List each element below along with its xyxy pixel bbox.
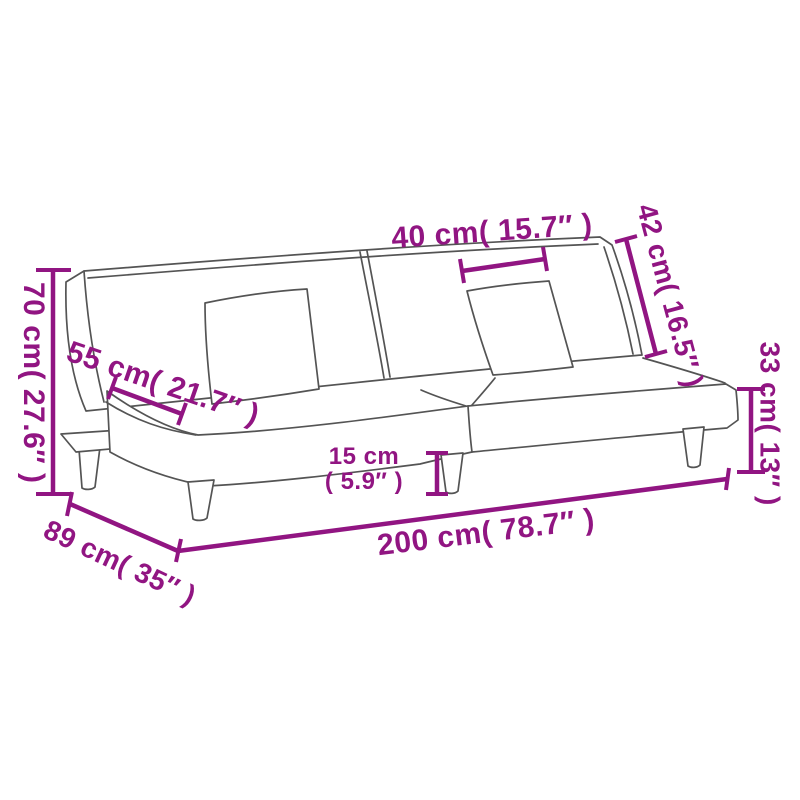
dimension-diagram: 70 cm( 27.6″ ) 55 cm( 21.7″ ) 40 cm( 15.…: [0, 0, 800, 800]
front-right-leg: [683, 427, 704, 467]
leg-height-inch: ( 5.9″ ): [289, 469, 439, 494]
leg-height-cm: 15 cm: [289, 444, 439, 469]
leg-height-label: 15 cm ( 5.9″ ): [289, 444, 439, 494]
sofa-illustration: [0, 0, 800, 800]
front-left-leg: [188, 480, 214, 520]
plank-leg: [79, 447, 100, 489]
back-height-label: 70 cm( 27.6″ ): [17, 273, 49, 493]
seat-height-label: 33 cm( 13″ ): [755, 329, 784, 519]
front-middle-leg: [441, 453, 463, 493]
